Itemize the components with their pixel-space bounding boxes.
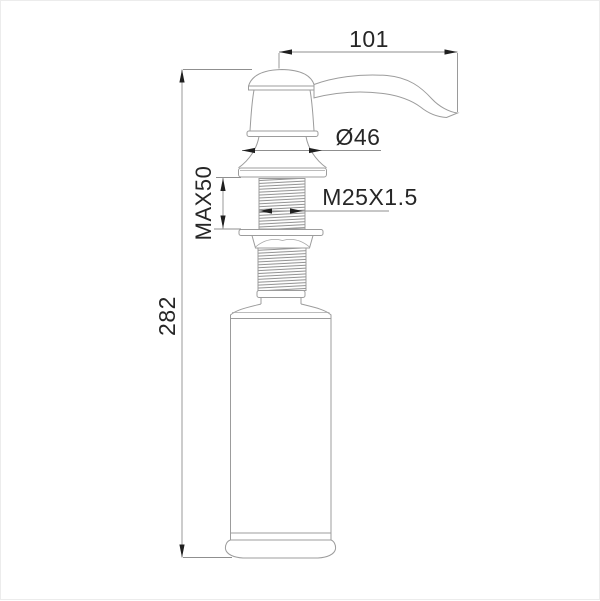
- dimension-overall-height: 282: [154, 70, 252, 558]
- dimension-label-101: 101: [349, 26, 389, 52]
- dimension-label-max50: MAX50: [191, 166, 216, 241]
- arrowhead-up: [220, 178, 225, 191]
- bell-flare-left: [239, 137, 260, 168]
- arrowhead-left: [242, 148, 255, 153]
- arrowhead-down: [179, 545, 184, 558]
- pump-knob-dome: [249, 70, 315, 91]
- shank-thread-lower: [258, 248, 306, 291]
- locknut: [252, 236, 313, 249]
- dimension-head-diameter: Ø46: [242, 124, 381, 153]
- bottle-body-sides: [231, 315, 332, 541]
- technical-drawing-page: 101 282 MAX50 Ø46 M25X1.5: [0, 0, 600, 600]
- shank-thread-upper: [259, 179, 305, 230]
- arrowhead-up: [179, 70, 184, 83]
- spout: [314, 75, 458, 118]
- bottle-neck-tube: [261, 298, 301, 305]
- arrowhead-left: [279, 49, 292, 54]
- arrowhead-down: [220, 216, 225, 229]
- pump-head-body-left: [250, 90, 254, 131]
- escutcheon-flange: [239, 168, 327, 177]
- dimension-label-d46: Ø46: [336, 124, 381, 150]
- dimension-max-thickness: MAX50: [191, 166, 241, 241]
- bottle-shoulder-right: [301, 304, 331, 315]
- soap-dispenser-diagram: 101 282 MAX50 Ø46 M25X1.5: [1, 1, 600, 601]
- arrowhead-right: [445, 49, 458, 54]
- dimension-label-282: 282: [154, 296, 180, 336]
- bottle-neck-collar: [257, 291, 305, 298]
- bottle-shoulder-left: [231, 304, 262, 315]
- locknut-washer: [239, 230, 323, 236]
- arrowhead-right: [309, 148, 322, 153]
- pump-head-body-right: [310, 90, 314, 131]
- bottle-base: [225, 540, 335, 558]
- locknut-chamfer-arcs: [256, 239, 310, 247]
- dimension-label-m25: M25X1.5: [322, 184, 418, 210]
- pump-head-rim-band: [247, 131, 318, 137]
